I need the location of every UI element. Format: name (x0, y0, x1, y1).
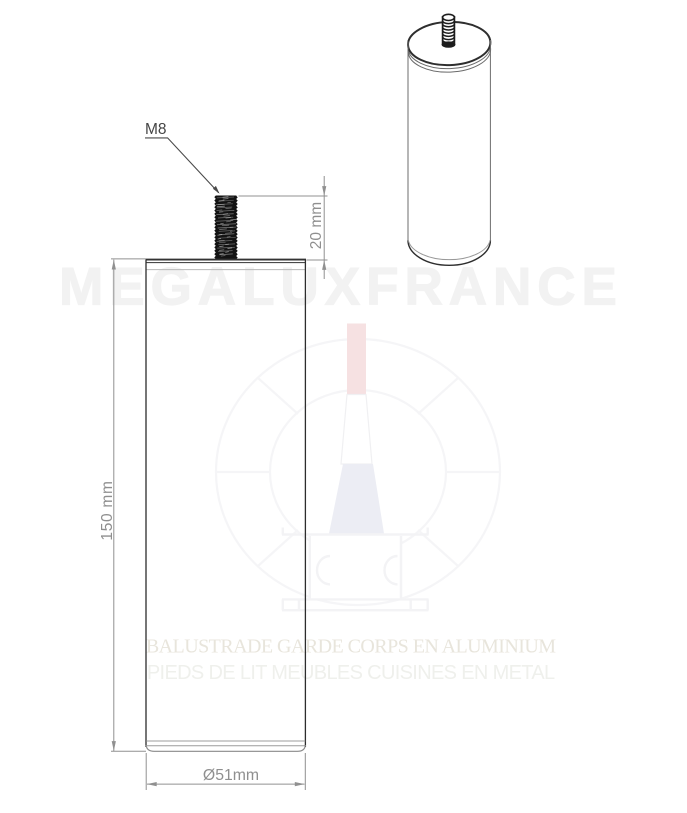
svg-text:MEGALUXFRANCE: MEGALUXFRANCE (59, 258, 623, 317)
svg-text:150 mm: 150 mm (99, 480, 116, 540)
svg-text:20 mm: 20 mm (308, 202, 325, 249)
svg-text:M8: M8 (145, 121, 167, 138)
svg-text:PIEDS DE LIT MEUBLES CUISINES: PIEDS DE LIT MEUBLES CUISINES EN METAL (147, 662, 555, 684)
svg-text:BALUSTRADE GARDE CORPS EN ALU: BALUSTRADE GARDE CORPS EN ALUMINIUM (146, 636, 556, 658)
svg-text:Ø51mm: Ø51mm (203, 767, 259, 784)
